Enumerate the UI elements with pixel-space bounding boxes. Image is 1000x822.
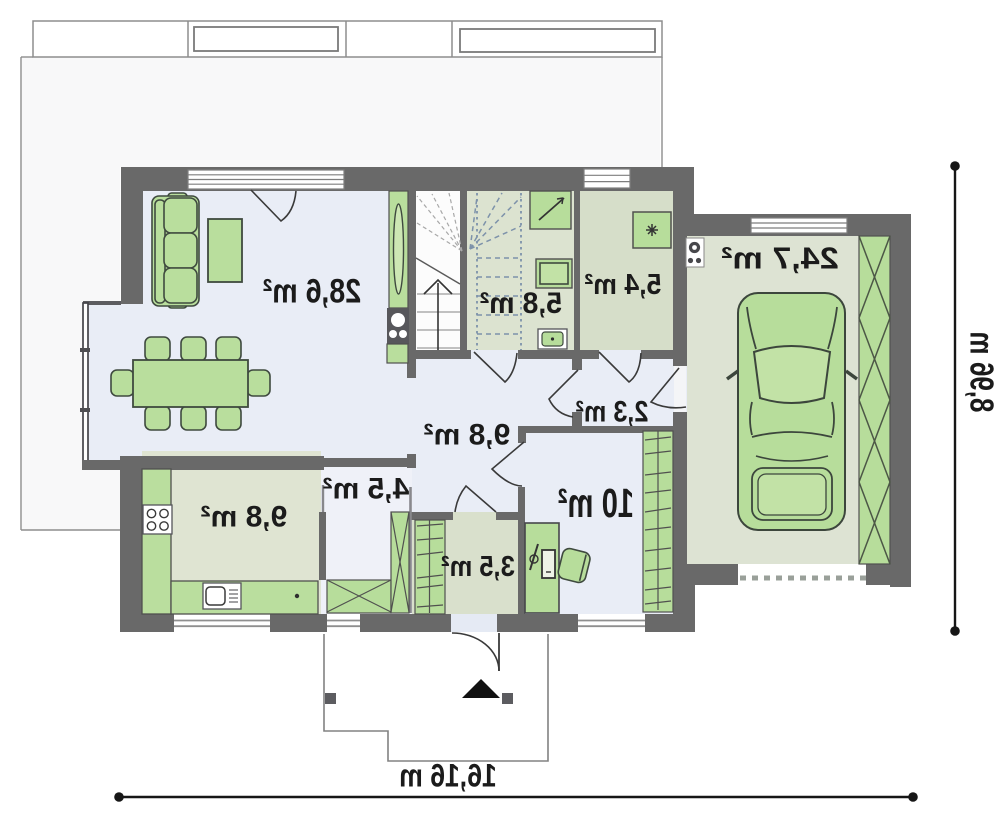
svg-text:2,3 m²: 2,3 m²	[576, 394, 649, 428]
svg-text:5,4 m²: 5,4 m²	[584, 268, 661, 300]
svg-text:16,16 m: 16,16 m	[399, 758, 496, 794]
svg-text:9,8 m²: 9,8 m²	[201, 501, 288, 534]
svg-text:8,96 m: 8,96 m	[963, 331, 1000, 412]
svg-text:9,8 m²: 9,8 m²	[424, 419, 511, 452]
svg-text:10 m²: 10 m²	[558, 480, 634, 526]
svg-text:28,6 m²: 28,6 m²	[263, 272, 361, 310]
svg-text:5,8 m²: 5,8 m²	[480, 288, 563, 321]
svg-text:3,5 m²: 3,5 m²	[441, 550, 515, 583]
svg-text:24,7 m²: 24,7 m²	[721, 241, 839, 275]
svg-text:4,5 m²: 4,5 m²	[323, 473, 410, 506]
